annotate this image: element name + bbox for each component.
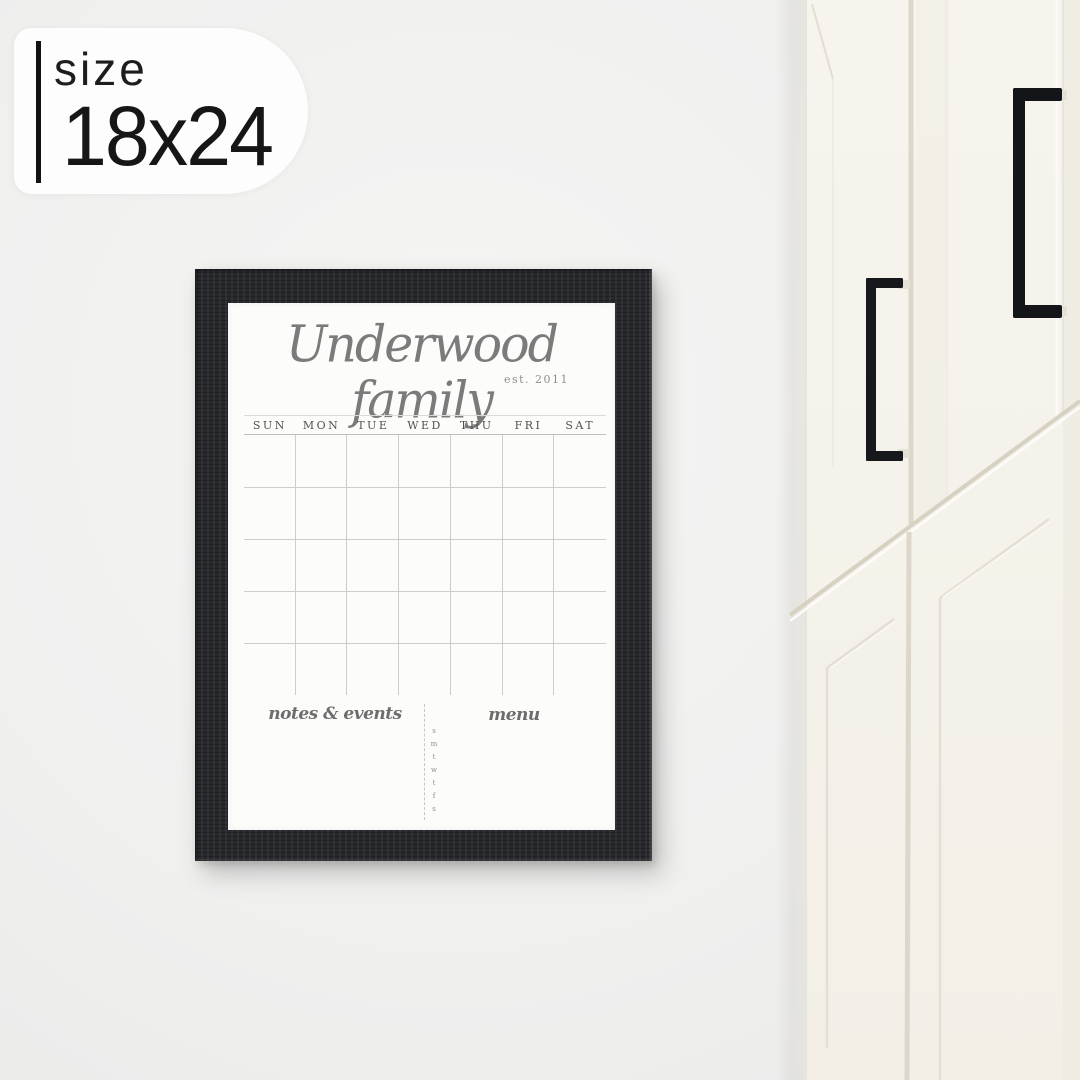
day-of-week-header-row: SUN MON TUE WED THU FRI SAT bbox=[244, 415, 606, 435]
calendar-cell bbox=[399, 487, 451, 539]
day-header-tue: TUE bbox=[347, 419, 399, 432]
calendar-cell bbox=[554, 539, 606, 591]
calendar-cell bbox=[347, 487, 399, 539]
calendar-cell bbox=[451, 591, 503, 643]
badge-size-value: 18x24 bbox=[62, 94, 272, 178]
right-door-handle bbox=[1013, 88, 1062, 318]
wall-cabinet-corner-shadow bbox=[776, 0, 806, 1080]
left-door-handle bbox=[866, 278, 903, 461]
calendar-grid-cells bbox=[244, 435, 606, 695]
calendar-cell bbox=[296, 591, 348, 643]
picture-frame: Underwood family est. 2011 SUN MON TUE W… bbox=[195, 269, 652, 861]
calendar-whiteboard: Underwood family est. 2011 SUN MON TUE W… bbox=[228, 303, 615, 830]
calendar-cell bbox=[399, 435, 451, 487]
calendar-cell bbox=[503, 487, 555, 539]
menu-label: menu bbox=[474, 705, 554, 725]
day-header-thu: THU bbox=[451, 419, 503, 432]
calendar-cell bbox=[554, 643, 606, 695]
calendar-cell bbox=[347, 643, 399, 695]
calendar-cell bbox=[399, 539, 451, 591]
calendar-cell bbox=[347, 435, 399, 487]
monthly-calendar: SUN MON TUE WED THU FRI SAT bbox=[244, 415, 606, 695]
calendar-cell bbox=[244, 435, 296, 487]
calendar-cell bbox=[451, 435, 503, 487]
established-year: est. 2011 bbox=[504, 373, 569, 386]
calendar-cell bbox=[451, 539, 503, 591]
badge-size-label: size bbox=[54, 46, 148, 92]
calendar-cell bbox=[503, 643, 555, 695]
day-header-sun: SUN bbox=[244, 419, 296, 432]
calendar-cell bbox=[296, 643, 348, 695]
cabinet-doors bbox=[806, 0, 1080, 1080]
calendar-cell bbox=[244, 487, 296, 539]
calendar-cell bbox=[554, 487, 606, 539]
calendar-cell bbox=[244, 539, 296, 591]
day-header-sat: SAT bbox=[554, 419, 606, 432]
day-header-wed: WED bbox=[399, 419, 451, 432]
calendar-cell bbox=[451, 643, 503, 695]
calendar-cell bbox=[503, 435, 555, 487]
calendar-cell bbox=[399, 591, 451, 643]
calendar-cell bbox=[244, 643, 296, 695]
day-header-mon: MON bbox=[296, 419, 348, 432]
calendar-cell bbox=[347, 591, 399, 643]
day-header-fri: FRI bbox=[503, 419, 555, 432]
calendar-cell bbox=[296, 487, 348, 539]
handle-posts bbox=[898, 90, 1067, 458]
badge-divider-bar bbox=[36, 41, 41, 183]
calendar-cell bbox=[399, 643, 451, 695]
calendar-cell bbox=[503, 539, 555, 591]
calendar-cell bbox=[451, 487, 503, 539]
notes-events-label: notes & events bbox=[255, 704, 415, 724]
calendar-cell bbox=[554, 591, 606, 643]
calendar-cell bbox=[347, 539, 399, 591]
calendar-cell bbox=[503, 591, 555, 643]
calendar-cell bbox=[296, 539, 348, 591]
menu-section-divider bbox=[424, 704, 425, 820]
calendar-cell bbox=[554, 435, 606, 487]
mini-weekday-letters: s m t w t f s bbox=[427, 725, 441, 816]
calendar-cell bbox=[244, 591, 296, 643]
calendar-cell bbox=[296, 435, 348, 487]
size-badge: size 18x24 bbox=[14, 28, 308, 194]
